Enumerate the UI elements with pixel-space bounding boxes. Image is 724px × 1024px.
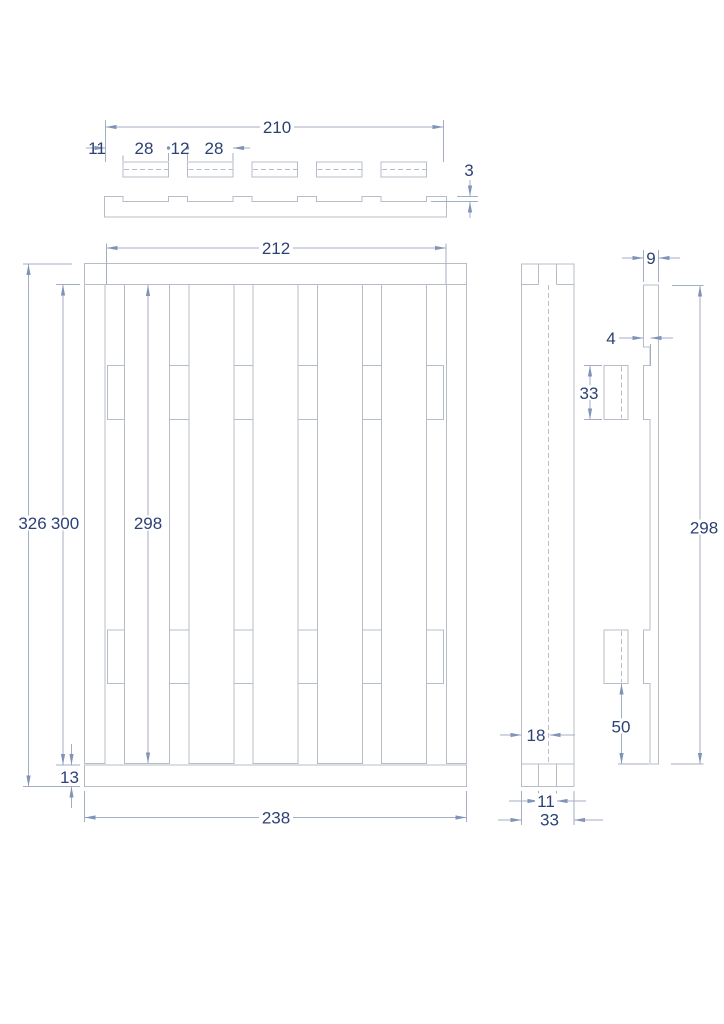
spacer-block <box>363 630 382 684</box>
cap-slot <box>252 162 298 177</box>
top-rail <box>85 264 467 285</box>
dim-label-3: 3 <box>464 161 473 180</box>
spacer-block <box>427 630 444 684</box>
spacer-block-side <box>604 630 628 684</box>
dim-label-18: 18 <box>527 726 546 745</box>
spacer-block <box>298 366 318 420</box>
dim-label-28a: 28 <box>135 139 154 158</box>
dim-label-9: 9 <box>646 249 655 268</box>
slat <box>85 285 106 764</box>
slat <box>447 285 467 764</box>
side-profile-outline <box>522 264 575 787</box>
dim-label-50: 50 <box>612 718 631 737</box>
dim-label-326: 326 <box>18 514 46 533</box>
spacer-block <box>108 366 125 420</box>
cap-strip-profile <box>105 197 447 218</box>
dim-label-210: 210 <box>263 118 291 137</box>
technical-drawing-page: 210 11 28 12 28 3 <box>0 0 724 1024</box>
dim-label-28b: 28 <box>205 139 224 158</box>
dim-label-238: 238 <box>262 809 290 828</box>
spacer-block <box>298 630 318 684</box>
front-view: 212 326 300 298 13 238 <box>16 239 467 828</box>
spacer-block <box>170 630 190 684</box>
dim-label-12: 12 <box>171 139 190 158</box>
dim-label-298-detail: 298 <box>690 519 718 538</box>
cap-slot <box>317 162 363 177</box>
spacer-block <box>170 366 190 420</box>
slat <box>318 285 363 764</box>
spacer-block <box>108 630 125 684</box>
dim-label-13: 13 <box>60 768 79 787</box>
side-view: 18 11 33 <box>498 264 603 830</box>
spacer-block <box>234 366 253 420</box>
dim-label-11: 11 <box>88 139 106 158</box>
dim-label-33-side: 33 <box>540 811 559 830</box>
dim-label-4: 4 <box>606 329 615 348</box>
slat <box>382 285 427 764</box>
slat <box>253 285 298 764</box>
slat <box>189 285 234 764</box>
spacer-block <box>427 366 444 420</box>
dim-label-300: 300 <box>51 514 79 533</box>
detail-view: 9 4 33 50 298 <box>578 249 722 764</box>
technical-drawing-canvas: 210 11 28 12 28 3 <box>0 0 724 1024</box>
cap-slot <box>381 162 427 177</box>
dim-label-11-side: 11 <box>537 792 555 811</box>
cap-slot <box>123 162 169 177</box>
spacer-block <box>363 366 382 420</box>
spacer-block-side <box>604 366 628 420</box>
dim-label-212: 212 <box>262 239 290 258</box>
spacer-block <box>234 630 253 684</box>
bottom-rail <box>85 765 467 787</box>
dim-label-298-front: 298 <box>134 514 162 533</box>
dim-label-33-block: 33 <box>580 384 599 403</box>
top-view: 210 11 28 12 28 3 <box>86 118 478 218</box>
cap-slot <box>188 162 234 177</box>
